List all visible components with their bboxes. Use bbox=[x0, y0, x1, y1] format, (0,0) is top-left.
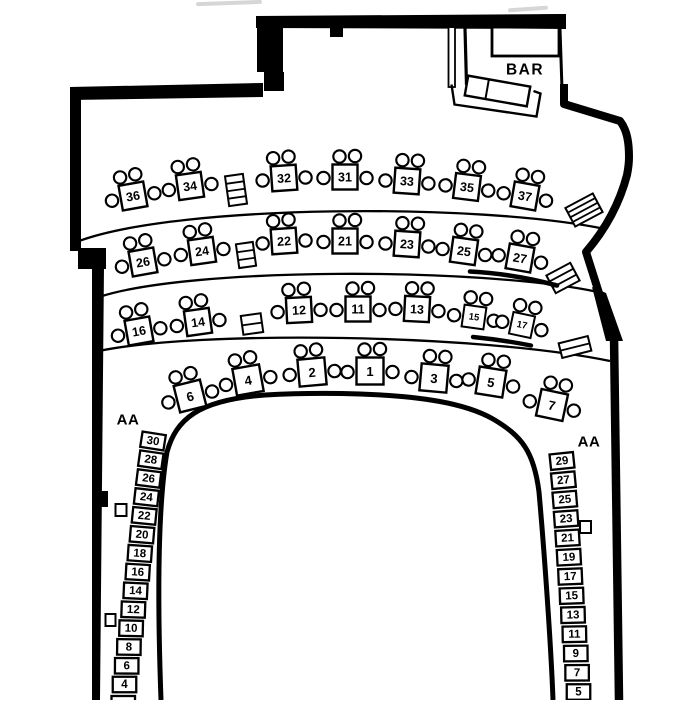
svg-text:30: 30 bbox=[146, 435, 161, 449]
svg-text:9: 9 bbox=[573, 648, 580, 660]
svg-text:AA: AA bbox=[578, 434, 601, 451]
svg-text:36: 36 bbox=[125, 188, 141, 204]
svg-text:34: 34 bbox=[182, 179, 198, 195]
svg-text:12: 12 bbox=[292, 303, 307, 318]
svg-text:11: 11 bbox=[351, 303, 364, 317]
svg-text:27: 27 bbox=[512, 250, 528, 266]
svg-text:25: 25 bbox=[456, 244, 472, 260]
svg-text:1: 1 bbox=[366, 364, 373, 379]
svg-text:BAR: BAR bbox=[506, 62, 544, 79]
svg-text:3: 3 bbox=[430, 371, 439, 387]
svg-text:26: 26 bbox=[135, 254, 151, 270]
svg-text:21: 21 bbox=[561, 532, 575, 545]
svg-text:32: 32 bbox=[277, 171, 292, 186]
svg-text:12: 12 bbox=[127, 604, 140, 616]
svg-text:37: 37 bbox=[517, 188, 533, 204]
svg-text:16: 16 bbox=[131, 323, 147, 339]
svg-text:21: 21 bbox=[338, 235, 352, 249]
svg-text:35: 35 bbox=[459, 180, 475, 196]
svg-text:6: 6 bbox=[123, 660, 129, 672]
svg-text:2: 2 bbox=[308, 365, 317, 381]
svg-text:26: 26 bbox=[141, 472, 155, 486]
svg-text:20: 20 bbox=[135, 529, 149, 542]
svg-text:7: 7 bbox=[574, 667, 580, 679]
svg-text:17: 17 bbox=[564, 571, 577, 584]
svg-text:28: 28 bbox=[144, 453, 159, 467]
svg-text:25: 25 bbox=[558, 493, 572, 506]
svg-text:14: 14 bbox=[129, 585, 143, 598]
svg-text:22: 22 bbox=[277, 234, 292, 249]
svg-text:19: 19 bbox=[562, 551, 575, 564]
svg-text:AA: AA bbox=[117, 412, 140, 429]
svg-text:23: 23 bbox=[559, 513, 573, 526]
svg-text:24: 24 bbox=[139, 491, 154, 504]
svg-text:13: 13 bbox=[566, 609, 579, 621]
svg-text:31: 31 bbox=[338, 171, 352, 185]
svg-text:4: 4 bbox=[121, 679, 128, 691]
svg-text:14: 14 bbox=[190, 315, 206, 331]
svg-text:33: 33 bbox=[400, 174, 415, 189]
svg-text:22: 22 bbox=[137, 510, 151, 523]
svg-text:24: 24 bbox=[194, 244, 210, 260]
svg-text:16: 16 bbox=[131, 566, 144, 579]
svg-text:23: 23 bbox=[400, 237, 415, 252]
svg-text:29: 29 bbox=[555, 455, 569, 468]
svg-text:15: 15 bbox=[565, 590, 579, 602]
svg-text:8: 8 bbox=[126, 641, 133, 653]
svg-text:27: 27 bbox=[557, 474, 571, 487]
svg-text:18: 18 bbox=[133, 547, 147, 560]
svg-text:10: 10 bbox=[125, 623, 138, 635]
svg-text:17: 17 bbox=[516, 319, 529, 332]
svg-text:5: 5 bbox=[575, 687, 582, 699]
svg-text:11: 11 bbox=[568, 629, 581, 641]
svg-text:13: 13 bbox=[410, 302, 425, 317]
